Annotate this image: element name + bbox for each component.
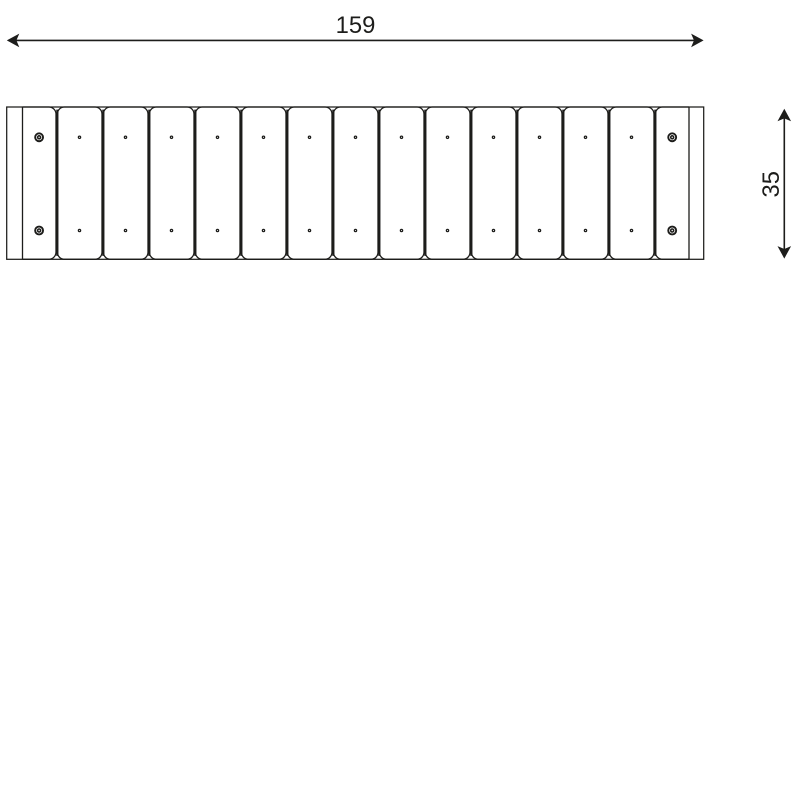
svg-text:159: 159 (336, 12, 376, 39)
svg-text:35: 35 (758, 171, 785, 197)
